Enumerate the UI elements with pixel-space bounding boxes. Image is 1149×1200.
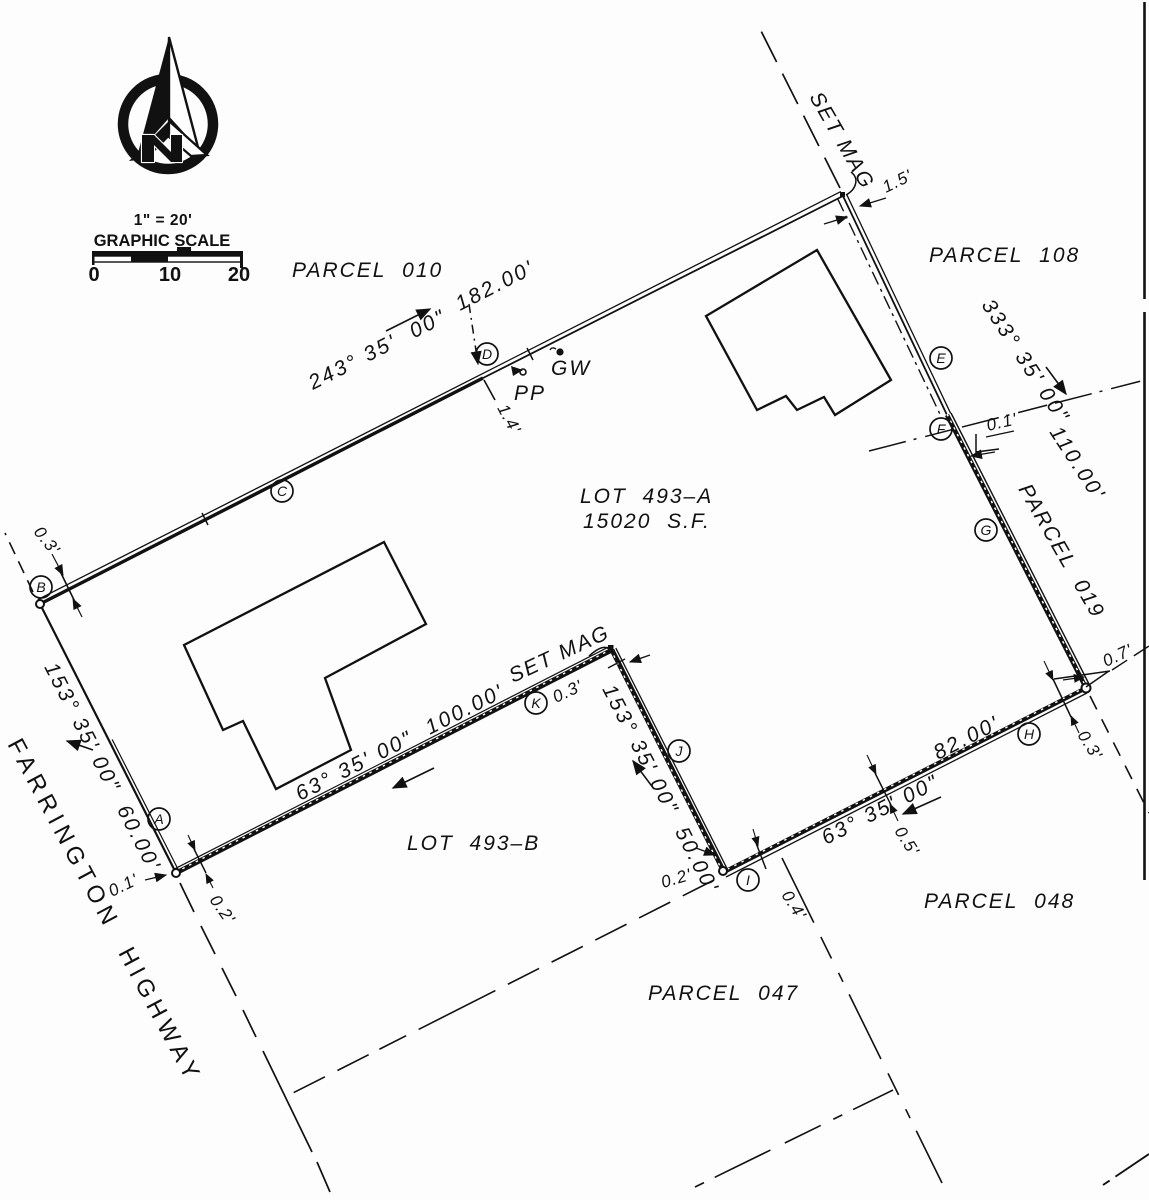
svg-text:PARCEL 108: PARCEL 108 [929,244,1080,267]
svg-text:15020 S.F.: 15020 S.F. [583,510,711,533]
svg-text:F: F [937,421,947,437]
svg-text:C: C [277,483,288,499]
svg-text:PARCEL 048: PARCEL 048 [924,890,1075,913]
svg-text:B: B [36,579,45,595]
svg-text:LOT 493–B: LOT 493–B [407,832,540,855]
svg-text:A: A [153,811,163,827]
svg-text:G: G [981,522,992,538]
svg-text:PARCEL 047: PARCEL 047 [648,982,799,1005]
svg-text:K: K [531,695,541,711]
svg-text:LOT 493–A: LOT 493–A [580,485,713,508]
svg-text:GW: GW [551,357,591,380]
svg-text:J: J [675,743,684,759]
svg-text:PARCEL 010: PARCEL 010 [292,259,443,282]
svg-text:PP: PP [514,382,546,405]
svg-text:1" = 20': 1" = 20' [134,212,193,229]
svg-text:D: D [482,346,492,362]
svg-text:E: E [936,350,946,366]
svg-text:GRAPHIC SCALE: GRAPHIC SCALE [94,232,231,250]
svg-text:I: I [746,872,750,888]
svg-text:0: 0 [88,264,99,286]
svg-text:20: 20 [228,264,250,286]
svg-text:10: 10 [159,264,181,286]
svg-text:H: H [1024,726,1035,742]
